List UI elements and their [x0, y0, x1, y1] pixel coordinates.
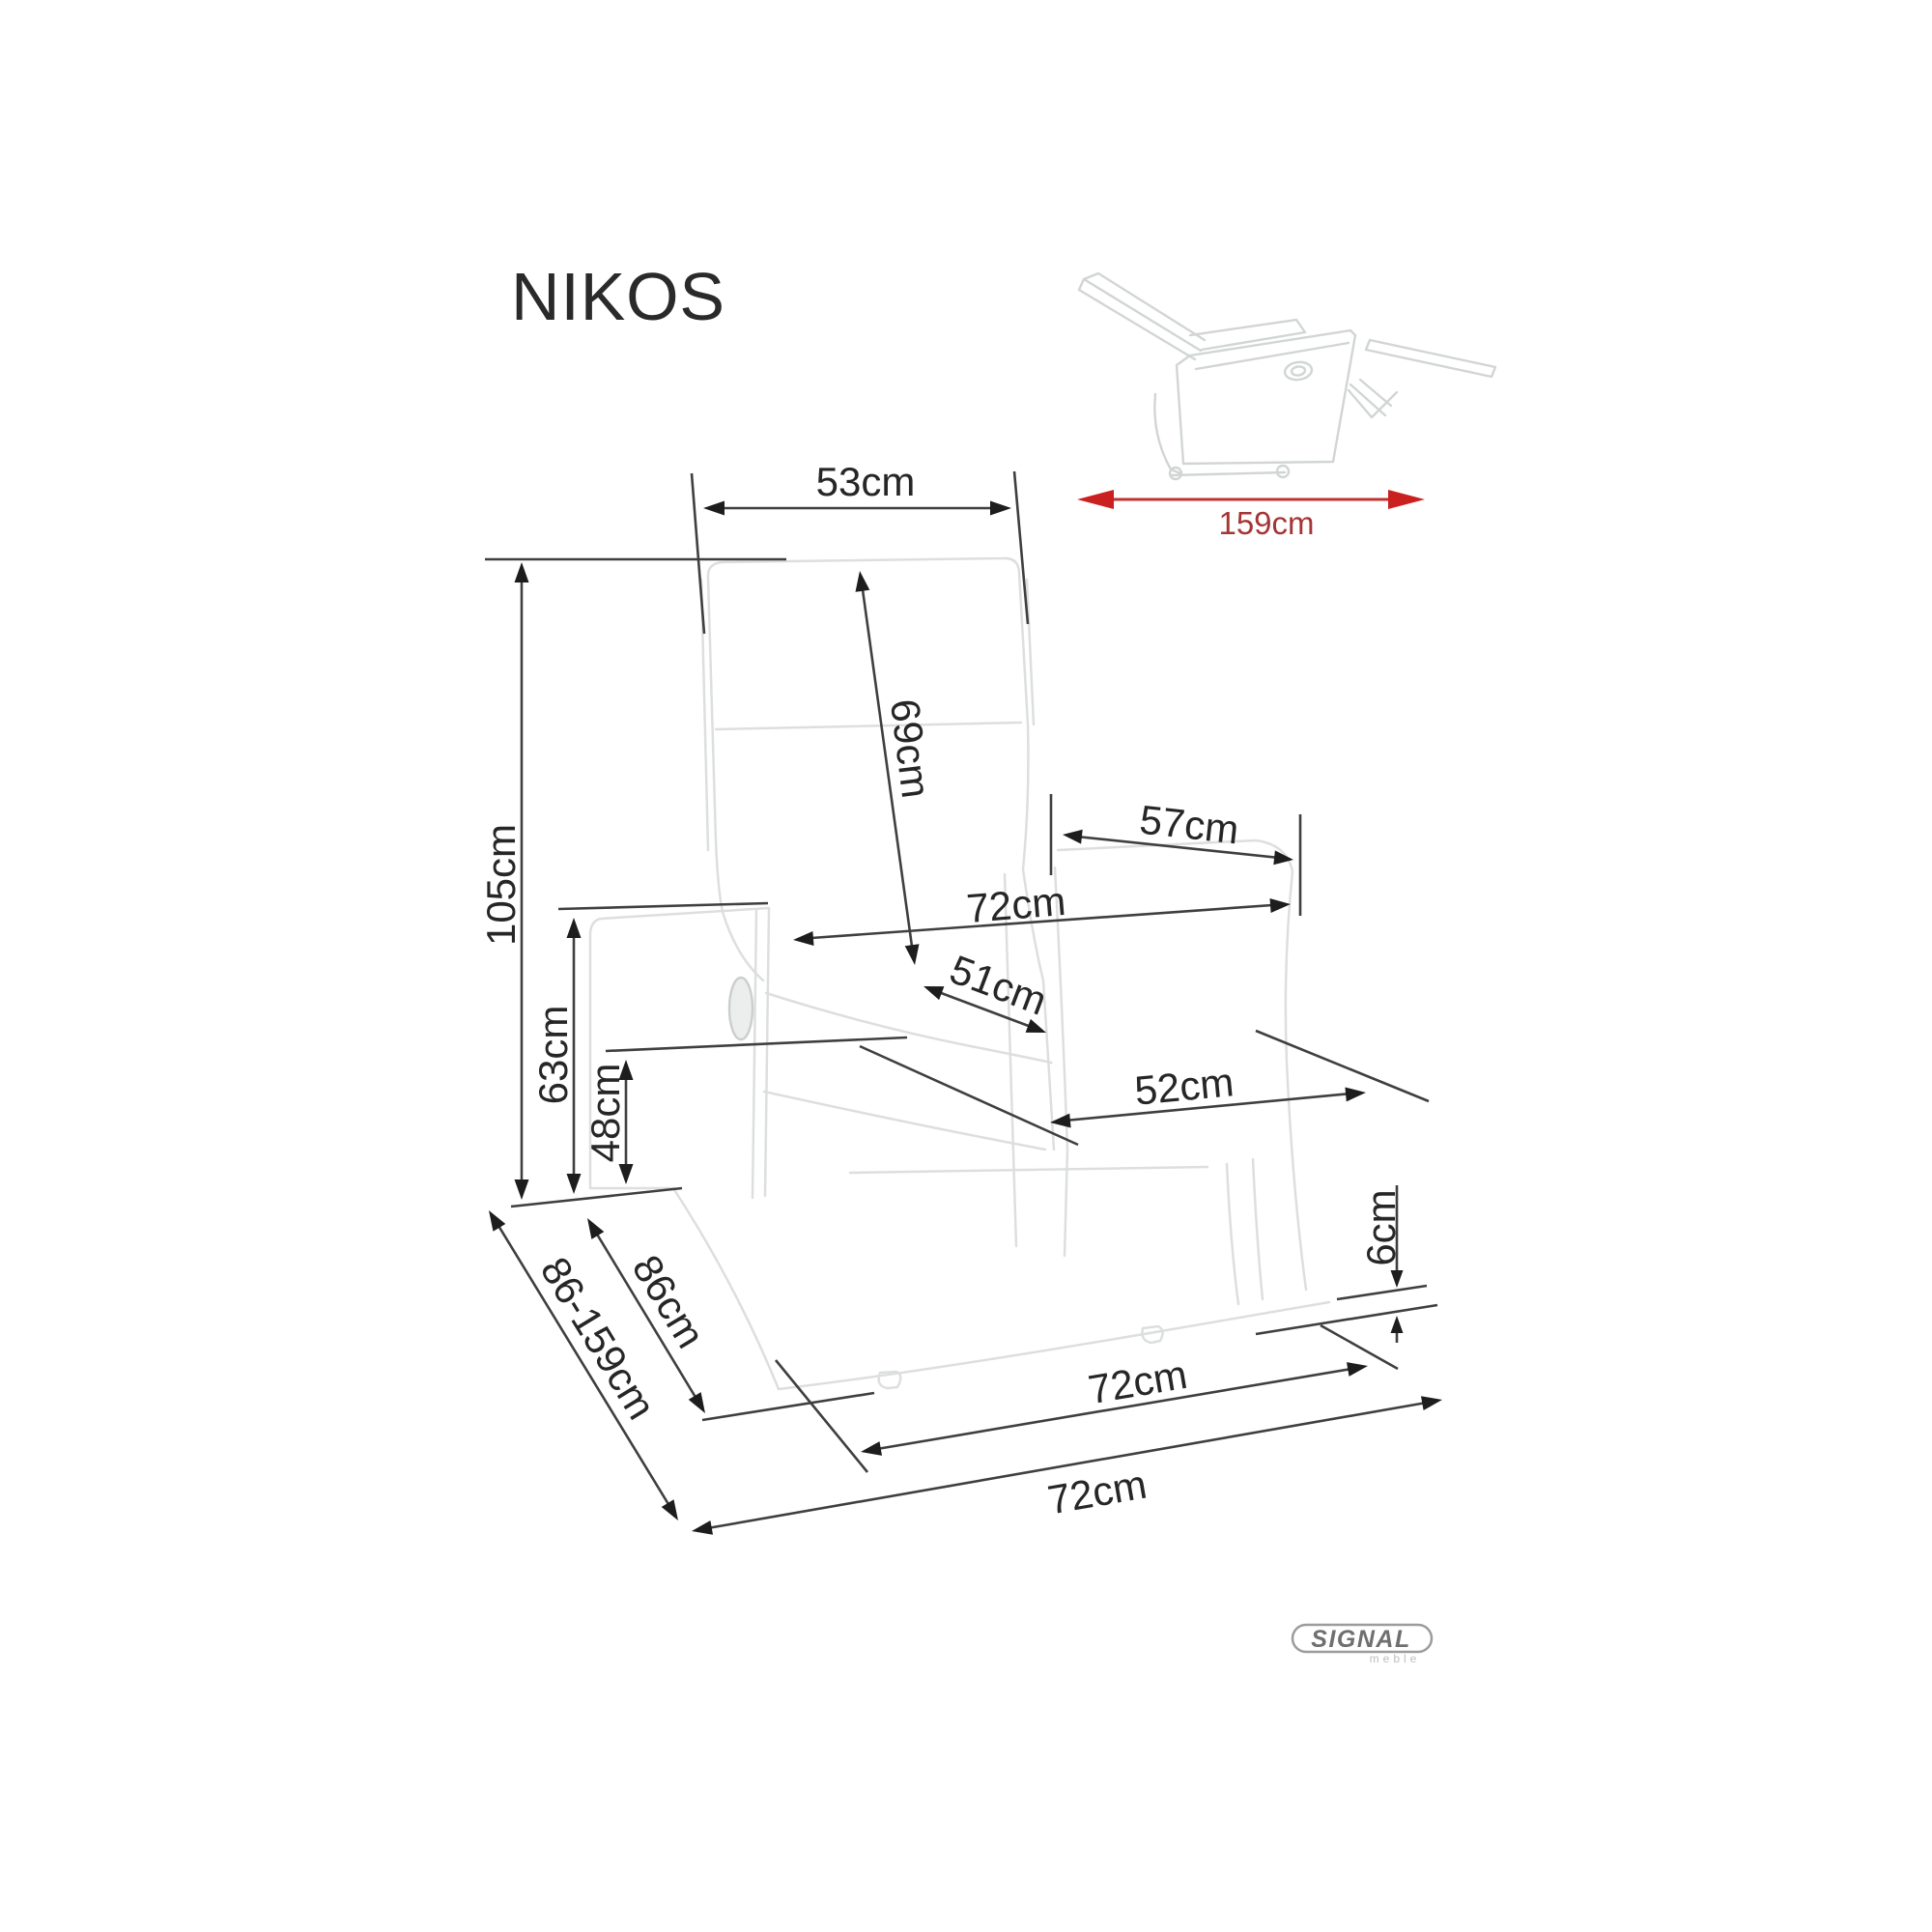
svg-text:63cm: 63cm [530, 1006, 576, 1105]
svg-text:72cm: 72cm [965, 878, 1067, 931]
svg-text:105cm: 105cm [478, 824, 524, 946]
svg-text:53cm: 53cm [816, 459, 916, 504]
svg-text:52cm: 52cm [1133, 1059, 1236, 1113]
svg-text:meble: meble [1370, 1652, 1421, 1665]
svg-text:SIGNAL: SIGNAL [1311, 1626, 1410, 1653]
svg-text:6cm: 6cm [1358, 1189, 1404, 1265]
svg-text:159cm: 159cm [1218, 505, 1314, 541]
svg-text:NIKOS: NIKOS [511, 259, 725, 334]
svg-text:48cm: 48cm [582, 1064, 628, 1163]
